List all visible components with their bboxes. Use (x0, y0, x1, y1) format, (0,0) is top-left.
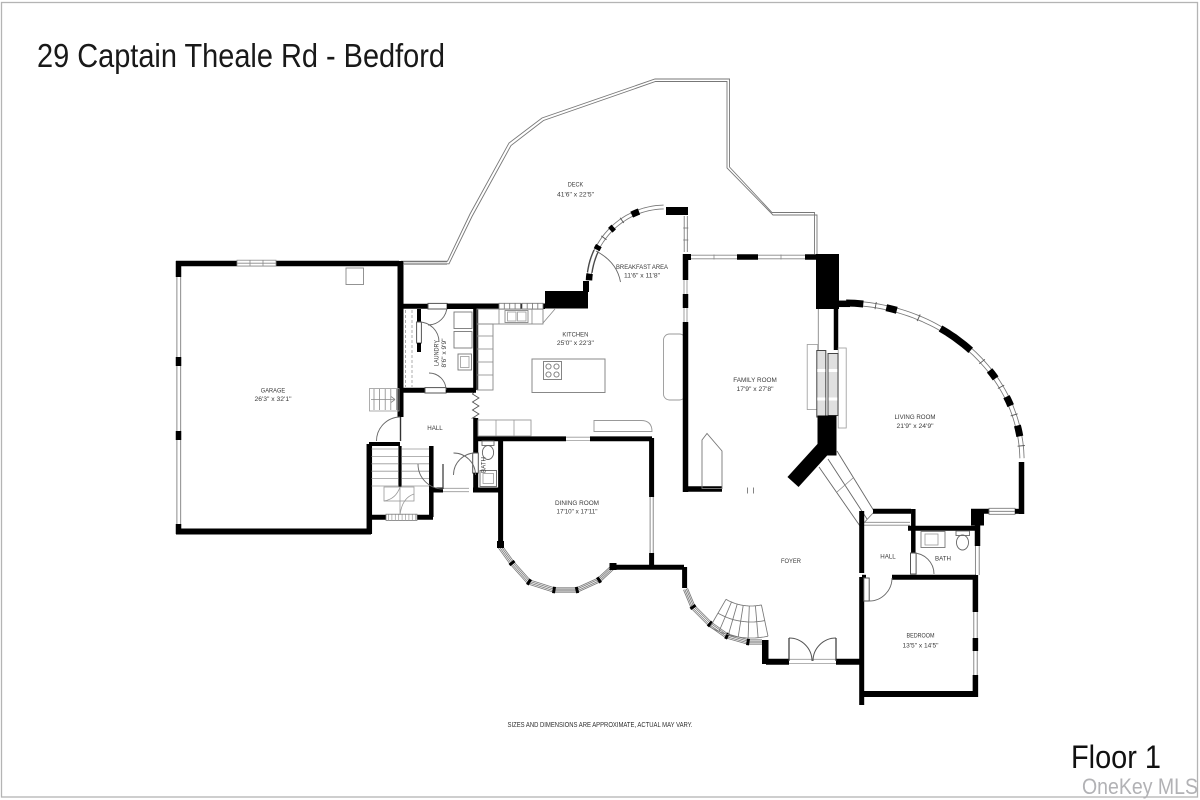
svg-text:BREAKFAST AREA: BREAKFAST AREA (616, 264, 668, 271)
svg-text:41'6" x 22'5": 41'6" x 22'5" (557, 192, 594, 199)
svg-text:21'9" x 24'9": 21'9" x 24'9" (897, 423, 934, 430)
svg-text:29 Captain Theale Rd - Bedford: 29 Captain Theale Rd - Bedford (37, 38, 445, 75)
svg-text:26'3" x 32'1": 26'3" x 32'1" (255, 396, 292, 403)
svg-text:FAMILY ROOM: FAMILY ROOM (733, 377, 777, 384)
svg-text:25'0" x 22'3": 25'0" x 22'3" (557, 340, 594, 347)
svg-text:8'6" x 9'9": 8'6" x 9'9" (441, 339, 448, 368)
svg-text:BEDROOM: BEDROOM (907, 633, 935, 640)
svg-text:LAUNDRY: LAUNDRY (434, 340, 441, 366)
svg-text:DINING ROOM: DINING ROOM (555, 500, 599, 507)
svg-text:Floor 1: Floor 1 (1071, 739, 1161, 775)
svg-text:11'6" x 11'8": 11'6" x 11'8" (624, 273, 660, 280)
svg-text:BATH: BATH (935, 556, 951, 563)
svg-text:BATH: BATH (481, 457, 488, 473)
svg-text:SIZES AND DIMENSIONS ARE APPRO: SIZES AND DIMENSIONS ARE APPROXIMATE, AC… (508, 720, 693, 729)
svg-text:17'10" x 17'11": 17'10" x 17'11" (557, 509, 598, 516)
svg-text:HALL: HALL (880, 554, 896, 561)
svg-text:HALL: HALL (427, 425, 443, 432)
svg-text:GARAGE: GARAGE (261, 388, 286, 395)
svg-text:OneKey MLS: OneKey MLS (1082, 774, 1198, 799)
svg-text:FOYER: FOYER (781, 558, 801, 565)
svg-text:KITCHEN: KITCHEN (562, 331, 588, 338)
svg-text:17'9" x 27'8": 17'9" x 27'8" (737, 386, 774, 393)
svg-text:DECK: DECK (568, 182, 584, 189)
svg-text:LIVING ROOM: LIVING ROOM (895, 414, 936, 421)
svg-text:13'5" x 14'5": 13'5" x 14'5" (903, 643, 939, 650)
